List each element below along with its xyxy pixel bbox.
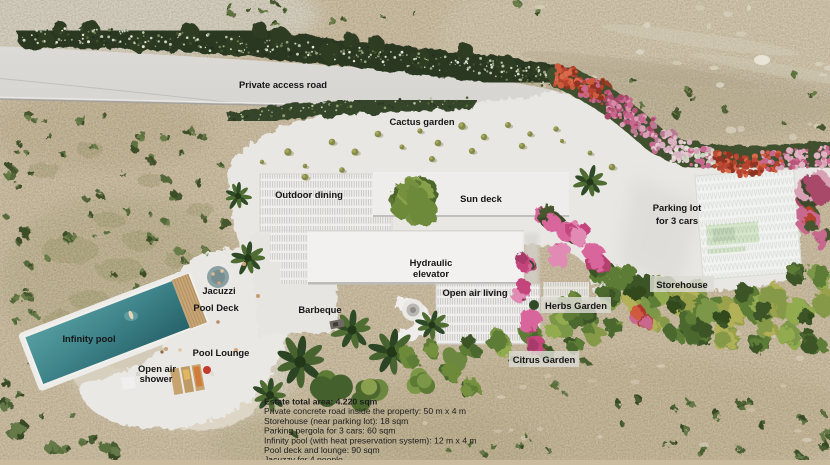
svg-text:elevator: elevator bbox=[413, 268, 449, 279]
svg-text:Parking pergola for 3 cars: 60: Parking pergola for 3 cars: 60 sqm bbox=[264, 426, 395, 436]
svg-text:Citrus Garden: Citrus Garden bbox=[513, 354, 576, 365]
svg-text:Hydraulic: Hydraulic bbox=[410, 257, 453, 268]
svg-text:Infinity pool: Infinity pool bbox=[62, 333, 115, 344]
svg-text:Jacuzzy for 4 people: Jacuzzy for 4 people bbox=[264, 455, 343, 460]
svg-text:shower: shower bbox=[140, 373, 173, 384]
svg-text:Estate total area: 4.220 sqm: Estate total area: 4.220 sqm bbox=[264, 397, 378, 407]
svg-text:Private access road: Private access road bbox=[239, 79, 327, 90]
svg-text:Barbeque: Barbeque bbox=[298, 304, 341, 315]
svg-text:Cactus garden: Cactus garden bbox=[389, 116, 454, 127]
svg-text:Jacuzzi: Jacuzzi bbox=[202, 285, 235, 296]
svg-text:Private concrete road inside t: Private concrete road inside the propert… bbox=[264, 406, 466, 416]
svg-text:Pool Deck: Pool Deck bbox=[193, 302, 239, 313]
svg-text:Storehouse: Storehouse bbox=[656, 279, 708, 290]
svg-text:Parking lot: Parking lot bbox=[653, 202, 701, 213]
svg-text:Sun deck: Sun deck bbox=[460, 193, 502, 204]
svg-text:Infinity pool (with heat prese: Infinity pool (with heat preservation sy… bbox=[264, 435, 477, 445]
svg-text:Pool deck and lounge: 90 sqm: Pool deck and lounge: 90 sqm bbox=[264, 445, 380, 455]
svg-text:Storehouse (near parking lot):: Storehouse (near parking lot): 18 sqm bbox=[264, 416, 408, 426]
svg-text:Herbs Garden: Herbs Garden bbox=[545, 300, 607, 311]
svg-text:Pool Lounge: Pool Lounge bbox=[193, 347, 250, 358]
svg-text:Open air living: Open air living bbox=[442, 287, 507, 298]
svg-text:Outdoor dining: Outdoor dining bbox=[275, 189, 343, 200]
svg-text:for 3 cars: for 3 cars bbox=[656, 215, 698, 226]
